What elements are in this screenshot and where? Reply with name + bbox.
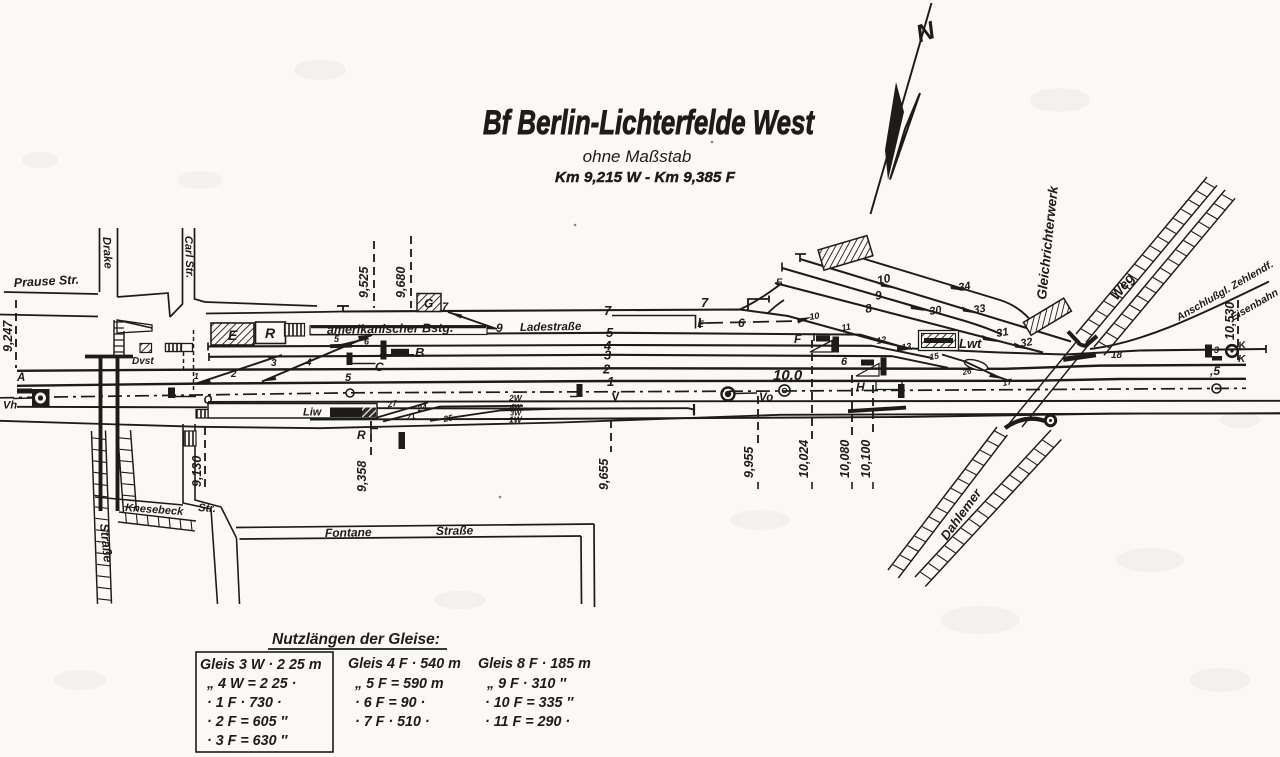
svg-text:,5: ,5: [1209, 364, 1220, 378]
svg-text:10,024: 10,024: [797, 440, 811, 478]
svg-text:Bf Berlin-Lichterfelde West: Bf Berlin-Lichterfelde West: [483, 104, 815, 142]
svg-text:32: 32: [1019, 336, 1033, 350]
svg-text:Ladestraße: Ladestraße: [520, 321, 582, 334]
svg-text:· 7 F · 510 ·: · 7 F · 510 ·: [355, 714, 430, 730]
svg-text:· 3 F = 630 ″: · 3 F = 630 ″: [207, 733, 289, 749]
svg-text:„ 5 F = 590 m: „ 5 F = 590 m: [354, 676, 444, 692]
svg-text:B: B: [415, 345, 424, 360]
svg-text:Gleis 3 W · 2 25 m: Gleis 3 W · 2 25 m: [200, 657, 322, 673]
svg-text:Lwt: Lwt: [959, 336, 982, 351]
svg-text:· 6 F = 90 ·: · 6 F = 90 ·: [355, 695, 425, 711]
svg-text:34: 34: [957, 280, 971, 294]
svg-text:„ 4 W = 2 25 ·: „ 4 W = 2 25 ·: [206, 676, 296, 692]
svg-text:11: 11: [841, 321, 852, 332]
svg-text:O: O: [203, 394, 214, 407]
svg-text:6: 6: [738, 316, 745, 330]
svg-text:9,130: 9,130: [190, 456, 204, 487]
svg-text:24: 24: [416, 402, 428, 414]
svg-text:C: C: [375, 360, 384, 374]
svg-text:F: F: [794, 332, 802, 346]
svg-text:Liw: Liw: [303, 407, 323, 419]
svg-text:4: 4: [305, 358, 312, 369]
svg-text:9,525: 9,525: [357, 266, 371, 298]
svg-text:9: 9: [496, 321, 503, 335]
svg-text:31: 31: [995, 326, 1009, 340]
svg-text:18: 18: [1111, 350, 1123, 361]
svg-text:7: 7: [442, 301, 449, 313]
svg-text:10,100: 10,100: [859, 440, 873, 478]
svg-text:Vh: Vh: [3, 400, 17, 412]
svg-text:12: 12: [876, 334, 888, 346]
svg-text:9,358: 9,358: [355, 461, 369, 492]
svg-text:· 2 F = 605 ″: · 2 F = 605 ″: [207, 714, 289, 730]
svg-text:9,247: 9,247: [1, 320, 15, 352]
svg-text:2: 2: [230, 369, 237, 380]
svg-text:13: 13: [901, 341, 913, 353]
svg-text:A: A: [16, 372, 25, 384]
svg-text:25: 25: [442, 412, 454, 424]
svg-text:15: 15: [929, 350, 940, 362]
svg-text:E: E: [776, 277, 783, 288]
svg-text:Km 9,215 W - Km 9,385 F: Km 9,215 W - Km 9,385 F: [555, 170, 736, 186]
svg-text:K: K: [1238, 354, 1246, 365]
svg-text:G: G: [424, 297, 433, 311]
svg-text:Carl Str.: Carl Str.: [182, 236, 195, 279]
svg-text:„ 9 F · 310 ″: „ 9 F · 310 ″: [486, 676, 567, 692]
svg-text:E: E: [698, 319, 705, 330]
svg-text:ohne Maßstab: ohne Maßstab: [583, 147, 692, 166]
svg-text:7: 7: [701, 295, 709, 310]
svg-text:9,680: 9,680: [394, 267, 408, 298]
svg-text:3: 3: [1214, 345, 1219, 355]
svg-text:E: E: [228, 327, 238, 343]
svg-text:H: H: [856, 380, 865, 394]
svg-text:Straße: Straße: [436, 523, 474, 538]
svg-text:R: R: [357, 428, 366, 442]
svg-text:Gleis 4 F · 540 m: Gleis 4 F · 540 m: [348, 656, 461, 672]
svg-text:9,655: 9,655: [597, 458, 611, 490]
svg-text:33: 33: [972, 303, 986, 317]
svg-text:9,955: 9,955: [742, 446, 756, 478]
svg-text:3: 3: [604, 348, 612, 363]
svg-text:Dvst: Dvst: [132, 356, 154, 367]
svg-text:amerikanischer Bstg.: amerikanischer Bstg.: [327, 321, 454, 337]
svg-text:· 10 F = 335 ″: · 10 F = 335 ″: [485, 695, 574, 711]
svg-text:10,530: 10,530: [1223, 302, 1237, 340]
svg-text:10: 10: [809, 310, 821, 322]
svg-text:Drake: Drake: [100, 237, 114, 270]
svg-text:6: 6: [841, 356, 848, 368]
svg-text:Fontane: Fontane: [325, 525, 372, 540]
svg-text:10,080: 10,080: [838, 440, 852, 478]
svg-text:R: R: [265, 325, 276, 341]
svg-text:Gleis 8 F · 185 m: Gleis 8 F · 185 m: [478, 656, 591, 672]
svg-text:7: 7: [604, 303, 612, 318]
svg-text:Nutzlängen der Gleise:: Nutzlängen der Gleise:: [272, 631, 440, 648]
svg-text:1W: 1W: [509, 415, 523, 425]
svg-text:5: 5: [345, 372, 352, 384]
svg-text:1: 1: [194, 371, 199, 381]
svg-text:Vo: Vo: [759, 392, 773, 404]
svg-text:· 1 F · 730 ·: · 1 F · 730 ·: [207, 695, 282, 711]
svg-text:1: 1: [607, 374, 614, 389]
svg-text:10,0: 10,0: [773, 367, 803, 384]
svg-text:3: 3: [271, 358, 277, 369]
svg-text:· 11 F = 290 ·: · 11 F = 290 ·: [485, 714, 570, 730]
